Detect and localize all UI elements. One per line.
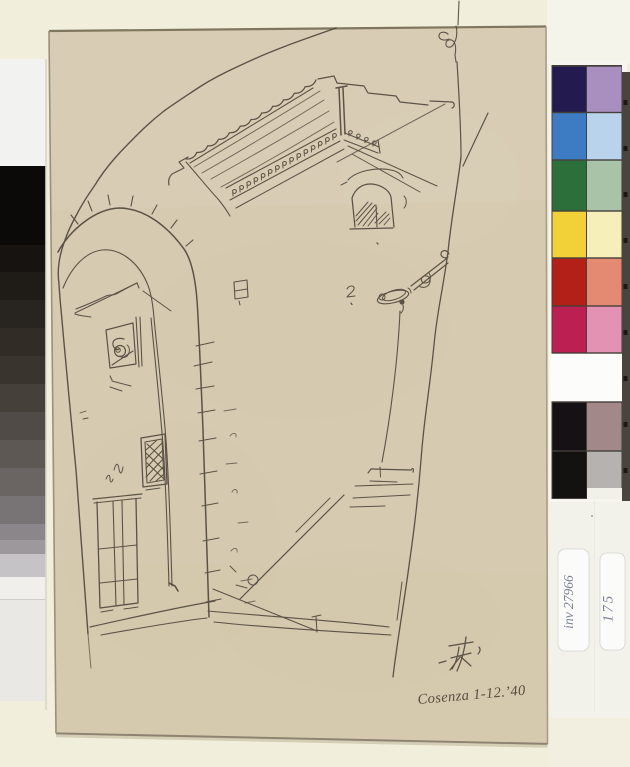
svg-text:175: 175 xyxy=(601,594,617,623)
svg-text:inv 27966: inv 27966 xyxy=(561,575,576,629)
